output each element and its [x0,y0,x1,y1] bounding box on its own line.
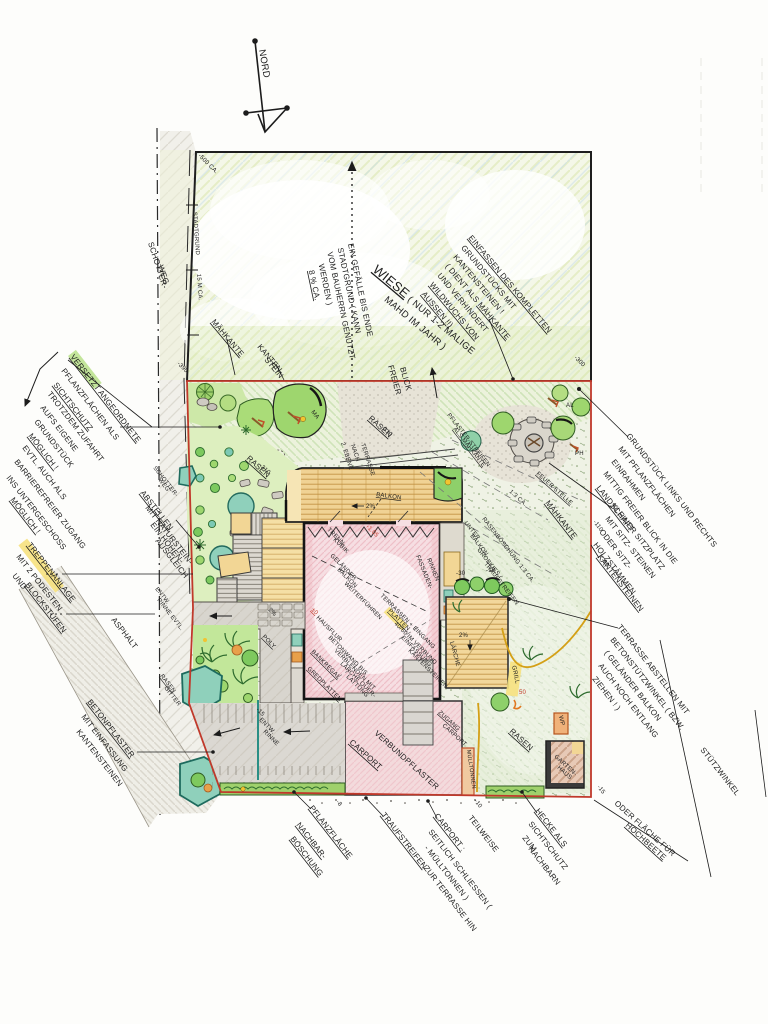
svg-text:-30: -30 [456,571,466,577]
svg-text:50: 50 [519,690,527,696]
svg-text:2%: 2% [366,504,376,510]
svg-text:AL: AL [566,403,574,409]
svg-text:2%: 2% [459,633,469,639]
svg-text:PH: PH [575,451,584,457]
